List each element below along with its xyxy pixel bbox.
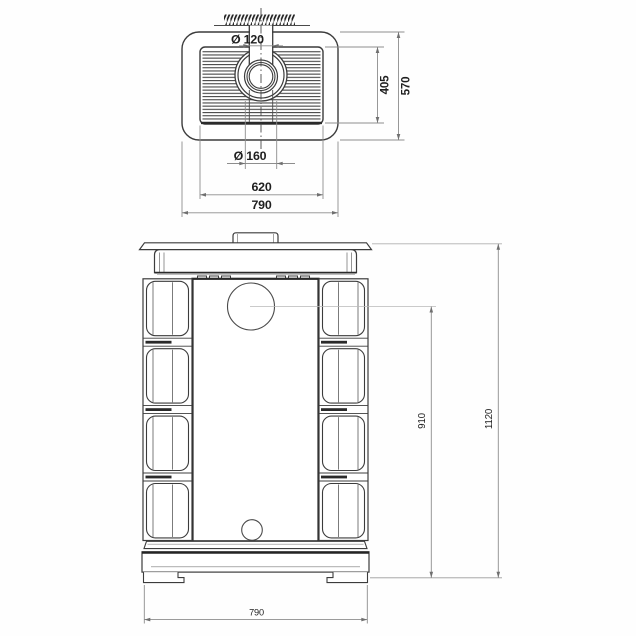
tile-column-left (143, 279, 192, 541)
dim-body-depth: 570 (340, 32, 413, 140)
base-body (142, 552, 369, 572)
dim-flue-center-height-label: 910 (417, 412, 428, 428)
dim-flue-outer-label: Ø 160 (234, 149, 267, 163)
air-intake-circle (242, 520, 263, 541)
foot-left (144, 572, 185, 583)
drawing-canvas: Ø 120 Ø 160 405 570 (0, 0, 636, 636)
front-view: 1120 910 790 (140, 233, 503, 624)
dim-overall-width-label: 790 (249, 608, 264, 618)
chimney-collar (233, 233, 278, 244)
dim-overall-height: 1120 (484, 244, 500, 578)
foot-right (327, 572, 368, 583)
dim-body-depth-label: 570 (400, 77, 413, 96)
dim-flue-inner-label: Ø 120 (231, 33, 264, 47)
dim-flue-center-height: 910 (417, 307, 433, 578)
base-molding (144, 541, 367, 548)
dim-overall-width: 790 (144, 585, 367, 624)
dim-grille-width-label: 620 (251, 180, 271, 194)
stove-technical-drawing: Ø 120 Ø 160 405 570 (0, 0, 636, 636)
dim-grille-depth-label: 405 (379, 75, 392, 94)
dim-body-width-label: 790 (251, 198, 271, 212)
dim-overall-height-label: 1120 (484, 408, 495, 429)
wall-hatch (224, 15, 295, 26)
top-view: Ø 120 Ø 160 405 570 (182, 8, 413, 217)
top-plate-band (155, 250, 357, 273)
tile-column-right (319, 279, 368, 541)
top-plate (140, 243, 372, 250)
